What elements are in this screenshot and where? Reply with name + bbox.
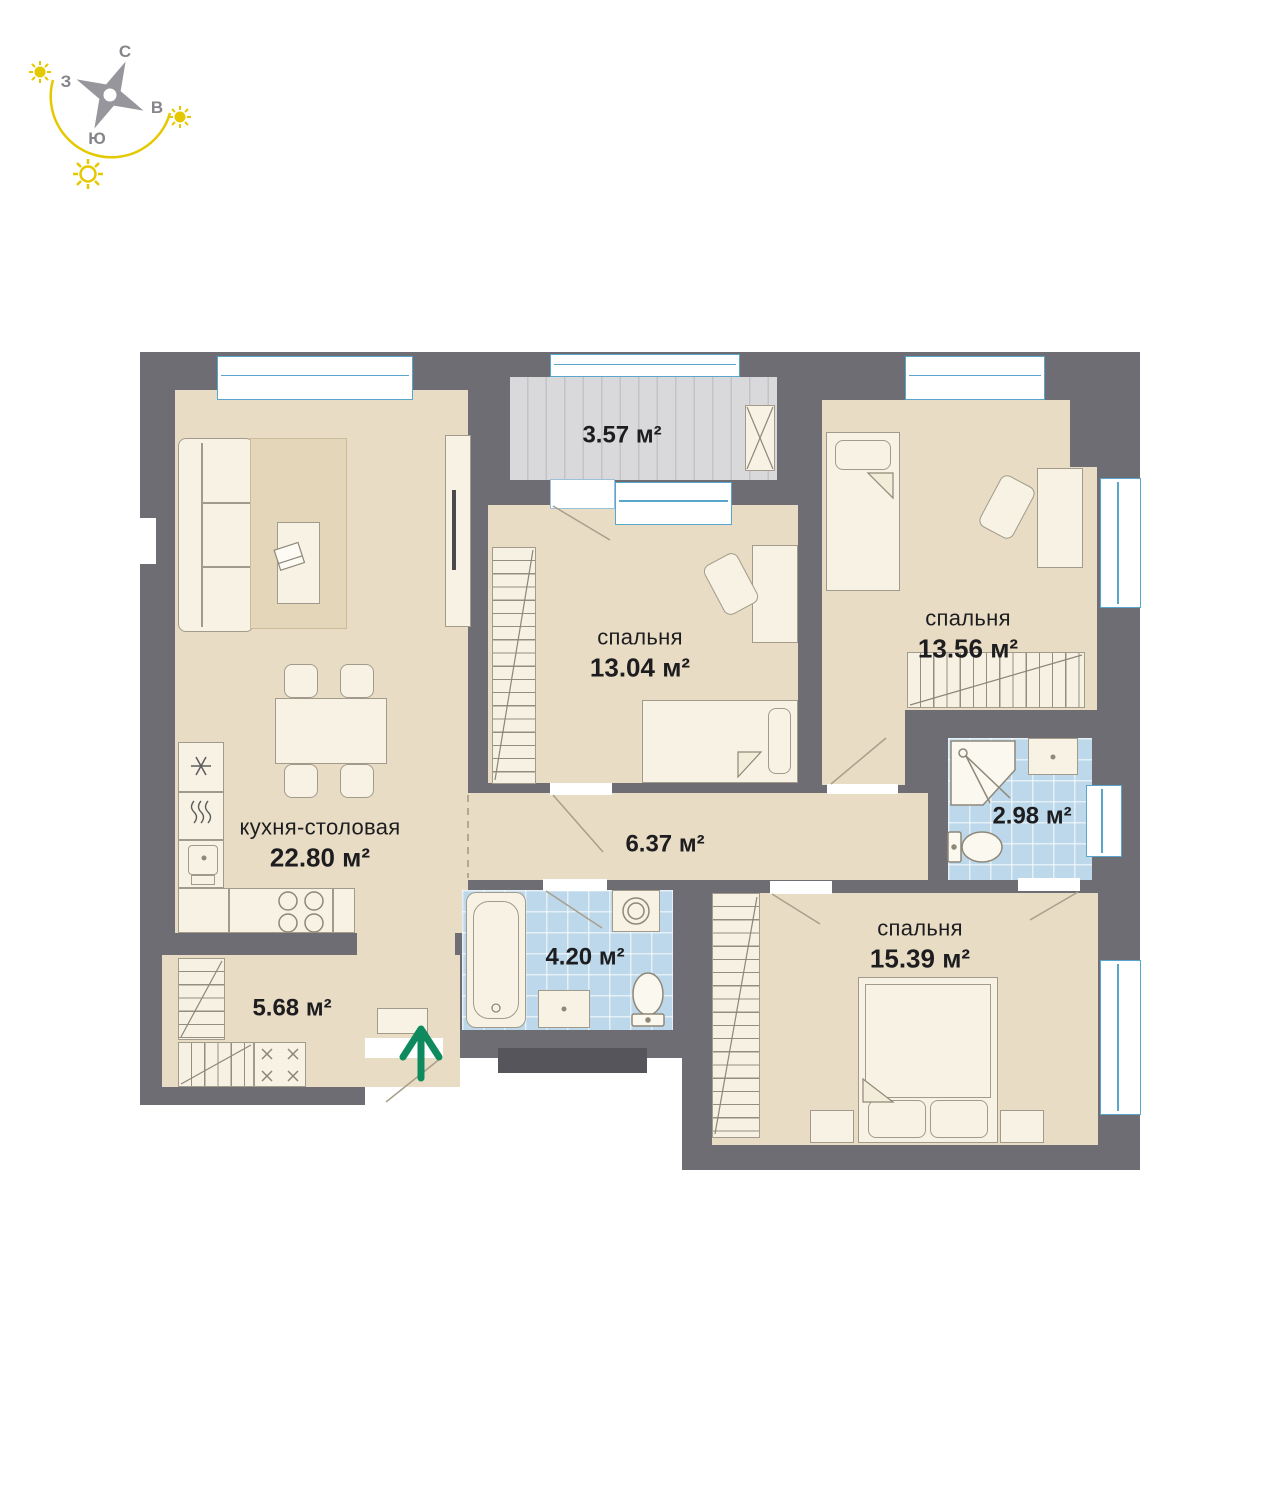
- dining-chair: [340, 764, 374, 798]
- sun-south-icon: [73, 159, 103, 189]
- bedroom3-nightstand-right: [1000, 1110, 1044, 1143]
- kitchen-counter-left: [178, 742, 224, 888]
- coffee-table: [277, 522, 320, 604]
- door-entry: [365, 1038, 443, 1058]
- compass-rose-icon: С В Ю З: [29, 42, 191, 189]
- dining-chair: [284, 764, 318, 798]
- dining-chair: [284, 664, 318, 698]
- door-bedroom2: [827, 784, 898, 794]
- bathroom-main-sink: [538, 990, 590, 1028]
- window-bedroom2-right: [1100, 478, 1141, 608]
- label-bedroom3: спальня 15.39 м²: [870, 914, 970, 975]
- window-sash: [1101, 789, 1103, 853]
- door-bedroom1: [550, 783, 612, 795]
- window-sash: [554, 364, 736, 366]
- bathroom-small-sink: [1028, 738, 1078, 775]
- bedroom3-mattress: [865, 984, 991, 1098]
- window-sash: [1117, 482, 1119, 604]
- window-balcony-outer: [550, 354, 740, 377]
- sofa: [178, 438, 254, 632]
- counter-divider: [179, 791, 223, 793]
- window-kitchen: [217, 356, 413, 400]
- sun-west-icon: [29, 61, 51, 83]
- bedroom3-wardrobe: [712, 893, 760, 1138]
- kitchen-sink-base: [191, 875, 215, 885]
- doormat: [377, 1008, 428, 1034]
- bathtub-inner: [473, 901, 519, 1019]
- bedroom2-pillow: [835, 440, 891, 470]
- window-bathroom-small: [1086, 785, 1122, 857]
- room-area: 2.98 м²: [992, 802, 1071, 833]
- room-area: 6.37 м²: [625, 830, 704, 861]
- window-sash: [221, 375, 409, 377]
- door-bathroom-main: [543, 879, 607, 891]
- bedroom1-desk: [752, 545, 798, 643]
- bathtub: [466, 892, 526, 1028]
- room-area: 13.56 м²: [918, 632, 1018, 665]
- compass-north-label: С: [119, 42, 131, 61]
- label-bathroom-small: 2.98 м²: [992, 802, 1071, 833]
- kitchen-sink: [188, 845, 218, 875]
- door-bedroom3: [770, 881, 832, 894]
- sun-east-icon: [169, 106, 191, 128]
- bedroom3-nightstand-left: [810, 1110, 854, 1143]
- compass-west-label: З: [61, 72, 72, 91]
- counter-divider: [228, 889, 230, 932]
- window-balcony-inner: [615, 482, 732, 525]
- room-name: кухня-столовая: [240, 813, 401, 841]
- label-balcony: 3.57 м²: [582, 421, 661, 452]
- dining-chair: [340, 664, 374, 698]
- room-area: 13.04 м²: [590, 651, 690, 684]
- tv-panel: [445, 435, 471, 627]
- room-name: спальня: [870, 914, 970, 942]
- compass-star: [61, 46, 159, 144]
- counter-divider: [179, 839, 223, 841]
- window-sash: [909, 375, 1041, 377]
- label-bedroom2: спальня 13.56 м²: [918, 604, 1018, 665]
- label-bedroom1: спальня 13.04 м²: [590, 623, 690, 684]
- bedroom2-floor-lower: [822, 710, 905, 785]
- counter-divider: [332, 889, 334, 932]
- shoe-cabinet: [254, 1042, 306, 1087]
- compass-east-label: В: [151, 98, 163, 117]
- label-kitchen: кухня-столовая 22.80 м²: [240, 813, 401, 874]
- label-bathroom-main: 4.20 м²: [545, 943, 624, 974]
- window-sash: [1117, 964, 1119, 1111]
- room-area: 22.80 м²: [240, 841, 401, 874]
- sofa-cushion-line: [203, 566, 250, 568]
- sofa-cushion-line: [203, 502, 250, 504]
- room-area: 15.39 м²: [870, 942, 970, 975]
- kitchen-counter-bottom: [178, 888, 355, 933]
- sofa-back-line: [201, 443, 203, 627]
- room-name: спальня: [918, 604, 1018, 632]
- hall-wardrobe: [178, 958, 225, 1040]
- room-area: 3.57 м²: [582, 421, 661, 452]
- washing-machine: [612, 890, 660, 932]
- balcony-cabinet: [745, 405, 775, 471]
- door-balcony: [550, 479, 615, 509]
- bedroom2-corner-wall: [1070, 400, 1097, 467]
- label-corridor: 6.37 м²: [625, 830, 704, 861]
- window-sash: [619, 500, 728, 502]
- room-area: 5.68 м²: [252, 994, 331, 1025]
- hall-wardrobe-low: [178, 1042, 254, 1087]
- room-area: 4.20 м²: [545, 943, 624, 974]
- facade-notch: [140, 518, 156, 564]
- bedroom3-pillow: [930, 1100, 988, 1138]
- bedroom1-pillow: [768, 708, 791, 774]
- dining-table: [275, 698, 387, 764]
- shaft: [498, 1048, 647, 1073]
- compass-south-label: Ю: [88, 129, 106, 148]
- room-name: спальня: [590, 623, 690, 651]
- window-bedroom2-top: [905, 356, 1045, 400]
- door-bathroom-small: [1018, 878, 1080, 891]
- bedroom3-pillow: [868, 1100, 926, 1138]
- bedroom2-desk: [1037, 468, 1083, 568]
- bedroom1-wardrobe: [492, 547, 536, 784]
- label-entry-hall: 5.68 м²: [252, 994, 331, 1025]
- window-bedroom3-right: [1100, 960, 1141, 1115]
